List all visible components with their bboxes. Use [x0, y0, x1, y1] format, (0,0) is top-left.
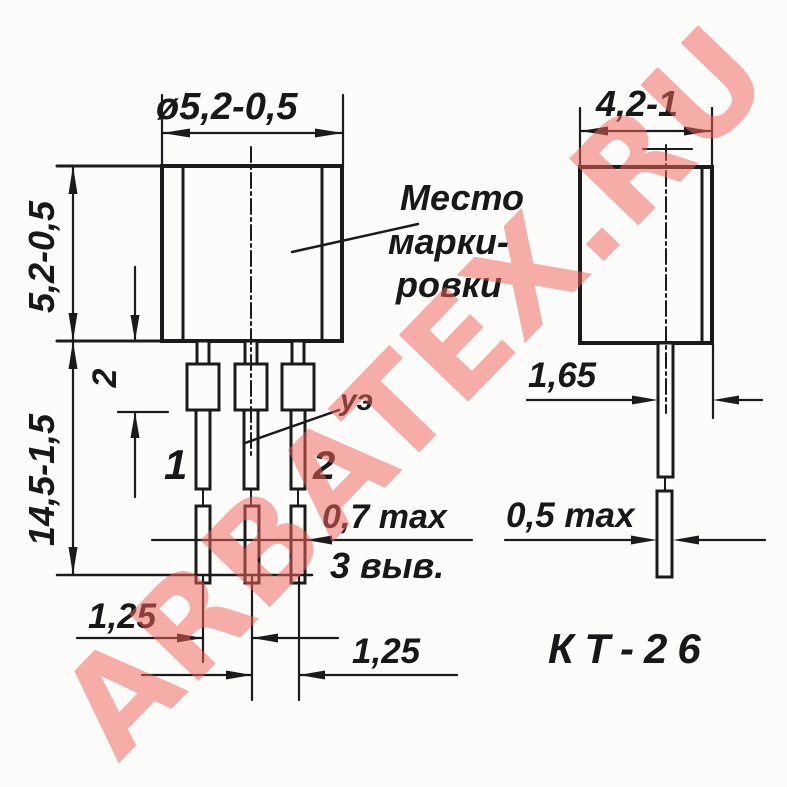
leads-count-note: 3 выв.	[330, 548, 444, 584]
side-depth-label: 4,2-1	[596, 86, 678, 122]
marking-note-line3: ровки	[396, 267, 502, 303]
front-diameter-label: ø5,2-0,5	[156, 88, 298, 126]
side-lead-offset-label: 1,65	[528, 358, 596, 393]
side-lead-thickness-label: 0,5 max	[506, 498, 634, 533]
pin2-label: 2	[313, 446, 335, 486]
side-view-lead	[657, 343, 673, 577]
front-total-height-label: 14,5-1,5	[24, 383, 64, 577]
pin1-label: 1	[164, 444, 187, 486]
package-name-label: КТ-26	[548, 628, 711, 670]
pitch-right-label: 1,25	[352, 634, 420, 669]
front-body-height-label: 5,2-0,5	[24, 172, 64, 342]
front-shoulder-length-label: 2	[88, 356, 128, 400]
marking-note-line2: марки-	[388, 224, 509, 260]
transistor-package-drawing: ø5,2-0,5 5,2-0,5 14,5-1,5 2 1 2 уэ Место…	[0, 0, 787, 787]
base-pin-label: уэ	[340, 386, 373, 416]
side-view-body	[580, 167, 712, 343]
marking-note-line1: Место	[400, 180, 524, 216]
pitch-left-label: 1,25	[88, 599, 156, 634]
lead-width-label: 0,7 max	[322, 500, 447, 534]
